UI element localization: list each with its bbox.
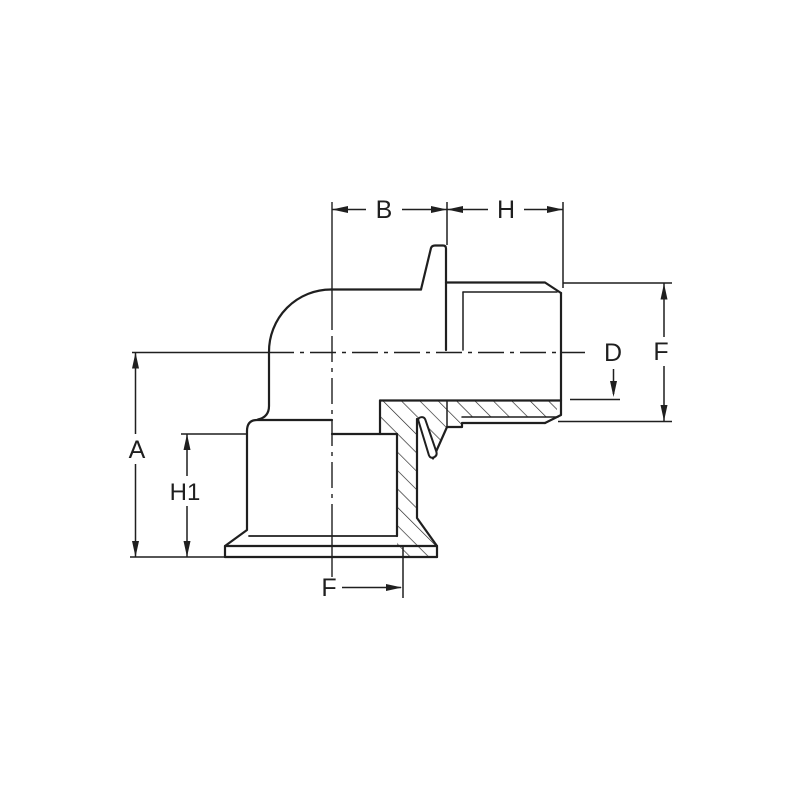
dim-h1-arrow-top bbox=[184, 434, 191, 450]
dim-label-h: H bbox=[497, 196, 515, 224]
drawing-page: B H F D A H1 bbox=[0, 0, 800, 800]
hatch-region bbox=[380, 401, 557, 557]
dim-label-d: D bbox=[604, 339, 622, 367]
body-outline bbox=[225, 246, 561, 558]
dim-f-bottom-arrow bbox=[386, 584, 402, 591]
dim-label-h1: H1 bbox=[170, 479, 201, 506]
dim-a: A bbox=[129, 353, 240, 558]
dim-label-f-bottom: F bbox=[321, 574, 336, 602]
dim-h-arrow-left bbox=[447, 206, 463, 213]
technical-drawing-canvas: B H F D A H1 bbox=[0, 0, 800, 800]
dim-h: H bbox=[447, 196, 563, 288]
dim-a-arrow-bottom bbox=[132, 541, 139, 557]
dim-f-right-arrow-top bbox=[661, 284, 668, 300]
dim-b: B bbox=[332, 196, 447, 245]
dim-h1-arrow-bottom bbox=[184, 541, 191, 557]
socket-top-corner bbox=[247, 420, 332, 431]
socket-outer-wall-left bbox=[225, 431, 247, 557]
dim-d: D bbox=[570, 339, 622, 400]
elbow-down-wall bbox=[258, 352, 269, 420]
dim-b-arrow-left bbox=[332, 206, 348, 213]
dim-d-arrow bbox=[610, 381, 617, 397]
dim-a-arrow-top bbox=[132, 353, 139, 369]
dim-h-arrow-right bbox=[547, 206, 563, 213]
dim-f-bottom: F bbox=[321, 546, 403, 602]
centerlines bbox=[132, 202, 585, 577]
thread-crest-bottom bbox=[433, 423, 545, 459]
elbow-outer-arc bbox=[269, 290, 331, 353]
dim-f-right-arrow-bottom bbox=[661, 405, 668, 421]
dim-label-b: B bbox=[376, 196, 393, 224]
dim-b-arrow-right bbox=[431, 206, 447, 213]
section-hatch bbox=[380, 401, 557, 557]
dim-label-f-right: F bbox=[653, 338, 668, 366]
dim-label-a: A bbox=[129, 436, 146, 464]
rib-outline bbox=[421, 246, 446, 351]
